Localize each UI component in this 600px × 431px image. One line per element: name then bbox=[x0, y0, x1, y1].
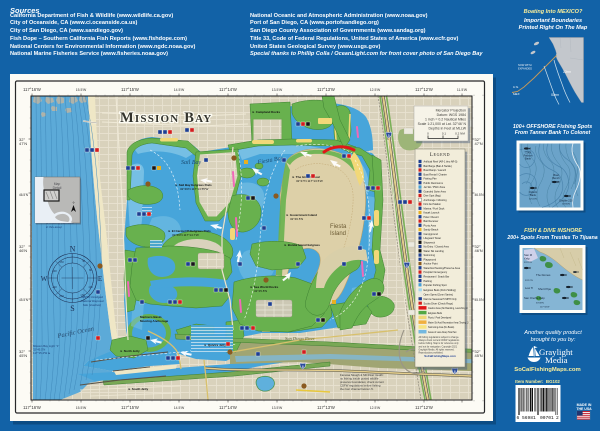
svg-text:5: 5 bbox=[406, 264, 408, 268]
svg-text:45.5'N: 45.5'N bbox=[19, 298, 29, 302]
svg-text:12nm: 12nm bbox=[563, 70, 571, 74]
svg-text:► Campland Docks: ► Campland Docks bbox=[252, 110, 280, 114]
svg-text:117°16'W: 117°16'W bbox=[23, 87, 41, 92]
svg-text:► Quivira Jetty: ► Quivira Jetty bbox=[204, 343, 226, 347]
svg-text:Hotel / Resort: Hotel / Resort bbox=[424, 215, 439, 219]
svg-text:1 inch = 0.2 Nautical Miles: 1 inch = 0.2 Nautical Miles bbox=[425, 118, 466, 122]
svg-text:Picnic Area: Picnic Area bbox=[424, 223, 437, 227]
svg-text:15.5'W: 15.5'W bbox=[76, 88, 87, 92]
svg-text:Kayak Launch: Kayak Launch bbox=[424, 211, 440, 215]
svg-text:Detail: Detail bbox=[53, 186, 62, 190]
svg-text:46'N: 46'N bbox=[19, 248, 27, 253]
svg-text:12.5'W: 12.5'W bbox=[370, 406, 381, 410]
svg-text:117°32'W: 117°32'W bbox=[540, 307, 550, 309]
svg-text:32°05'N: 32°05'N bbox=[562, 204, 570, 206]
svg-text:33°00'N: 33°00'N bbox=[552, 182, 560, 184]
svg-text:117°14'W: 117°14'W bbox=[219, 87, 237, 92]
svg-text:Datum: WGS 1984: Datum: WGS 1984 bbox=[437, 113, 466, 117]
svg-text:Eelgrass Beds (Fish-Holding): Eelgrass Beds (Fish-Holding) bbox=[424, 288, 456, 292]
svg-text:Parking: Parking bbox=[424, 279, 433, 283]
svg-text:the river channel below I-5.: the river channel below I-5. bbox=[340, 387, 374, 391]
svg-text:Bench: Bench bbox=[552, 176, 560, 180]
svg-text:0.2 NM: 0.2 NM bbox=[455, 132, 465, 136]
svg-text:Anchorage / Mooring: Anchorage / Mooring bbox=[424, 198, 448, 202]
svg-text:210: 210 bbox=[59, 294, 64, 298]
svg-text:Shipwreck: Shipwreck bbox=[424, 240, 436, 244]
svg-text:Site (inactive): Site (inactive) bbox=[83, 303, 101, 307]
svg-text:32°46'N 117°14.7'W: 32°46'N 117°14.7'W bbox=[172, 233, 199, 237]
svg-text:Boat Ramp / Launch: Boat Ramp / Launch bbox=[424, 168, 447, 172]
svg-text:The Domes: The Domes bbox=[536, 273, 551, 277]
svg-text:Dive Spot (flag): Dive Spot (flag) bbox=[424, 194, 441, 198]
svg-text:13.5'W: 13.5'W bbox=[272, 88, 283, 92]
svg-text:120: 120 bbox=[88, 285, 93, 289]
svg-text:Hospital / Emergency: Hospital / Emergency bbox=[424, 270, 448, 274]
svg-text:12.5'W: 12.5'W bbox=[370, 88, 381, 92]
svg-text:SoCalFishingMaps.com: SoCalFishingMaps.com bbox=[424, 354, 456, 358]
svg-text:Waterfowl Nesting/Preserve Are: Waterfowl Nesting/Preserve Area bbox=[424, 266, 461, 270]
svg-text:Bank: Bank bbox=[525, 157, 532, 161]
svg-text:56981: 56981 bbox=[522, 415, 536, 421]
svg-text:60: 60 bbox=[89, 268, 93, 272]
svg-text:32°46.5'N: 32°46.5'N bbox=[290, 217, 303, 221]
svg-text:8: 8 bbox=[302, 365, 304, 369]
svg-text:14.5'W: 14.5'W bbox=[174, 88, 185, 92]
svg-text:117°15'W: 117°15'W bbox=[121, 87, 139, 92]
svg-text:117°13'W: 117°13'W bbox=[317, 87, 335, 92]
svg-text:MISSION BAY: MISSION BAY bbox=[120, 110, 212, 126]
svg-text:Scuba Diver (Check Regs): Scuba Diver (Check Regs) bbox=[424, 301, 454, 305]
svg-text:33°08'N: 33°08'N bbox=[536, 303, 544, 305]
svg-text:Open Speed Zone (Varies): Open Speed Zone (Varies) bbox=[424, 292, 454, 296]
svg-text:W: W bbox=[41, 275, 48, 283]
svg-text:Bait Barge (Bait & Tackle): Bait Barge (Bait & Tackle) bbox=[424, 164, 452, 168]
svg-text:Areas of Less-Deep Total Set: Areas of Less-Deep Total Set bbox=[428, 331, 457, 334]
svg-text:Boat Rental / Charter: Boat Rental / Charter bbox=[424, 172, 447, 176]
svg-text:47'N: 47'N bbox=[19, 141, 27, 146]
svg-text:0.1: 0.1 bbox=[442, 132, 447, 136]
svg-text:NOW WITH: NOW WITH bbox=[518, 63, 532, 67]
svg-text:32°46'N 117°14.55'W: 32°46'N 117°14.55'W bbox=[180, 187, 209, 191]
svg-text:Bank: Bank bbox=[530, 193, 537, 197]
svg-text:Double 220: Double 220 bbox=[559, 199, 573, 203]
svg-text:45'N: 45'N bbox=[19, 353, 27, 358]
svg-text:EXPANDED: EXPANDED bbox=[518, 67, 532, 71]
svg-text:2: 2 bbox=[556, 415, 559, 421]
svg-text:5: 5 bbox=[388, 134, 390, 138]
svg-text:Water Ski And Recreation Area: Water Ski And Recreation Area (Towing 1/ bbox=[428, 321, 469, 324]
svg-text:Restaurant / Snack Bar: Restaurant / Snack Bar bbox=[424, 274, 450, 278]
svg-text:240: 240 bbox=[52, 285, 57, 289]
svg-text:Mercator Projection: Mercator Projection bbox=[436, 109, 466, 113]
svg-text:► North Jetty: ► North Jetty bbox=[120, 349, 140, 353]
svg-text:Water Ski Landing: Water Ski Landing bbox=[424, 249, 445, 253]
svg-text:No Entry / Closed Area: No Entry / Closed Area bbox=[424, 245, 450, 249]
svg-text:MEX.: MEX. bbox=[513, 92, 521, 96]
svg-text:330: 330 bbox=[59, 260, 64, 264]
svg-text:Sail Bay: Sail Bay bbox=[181, 160, 201, 166]
svg-text:8: 8 bbox=[454, 370, 456, 374]
svg-text:Guarded Swim Area: Guarded Swim Area bbox=[424, 189, 447, 193]
svg-text:32°22'N: 32°22'N bbox=[529, 199, 537, 201]
svg-text:Sandy Beach: Sandy Beach bbox=[424, 228, 439, 232]
svg-text:Artificial Reef (AR-1 thru AR-: Artificial Reef (AR-1 thru AR-5) bbox=[424, 160, 458, 164]
svg-text:Playground: Playground bbox=[424, 257, 437, 261]
svg-text:11.5'W: 11.5'W bbox=[457, 88, 468, 92]
svg-text:► Bonita Island Eelgrass: ► Bonita Island Eelgrass bbox=[284, 243, 320, 247]
svg-text:Scale 1:21,000 at Lat. 32°46': Scale 1:21,000 at Lat. 32°46' N bbox=[418, 122, 467, 126]
svg-text:Anchor Point: Anchor Point bbox=[424, 262, 439, 266]
svg-text:Fiesta: Fiesta bbox=[330, 224, 347, 230]
svg-text:Swimming Area (No Boats): Swimming Area (No Boats) bbox=[428, 326, 454, 329]
svg-text:Mooring Anchorage: Mooring Anchorage bbox=[140, 319, 169, 323]
svg-text:U.S.: U.S. bbox=[513, 85, 519, 89]
svg-text:Island: Island bbox=[330, 231, 346, 237]
svg-text:Kelp: Kelp bbox=[524, 257, 530, 261]
svg-text:San Onofre Kelp: San Onofre Kelp bbox=[524, 296, 545, 300]
svg-text:46.5'N: 46.5'N bbox=[475, 193, 485, 197]
svg-text:117°12'W: 117°12'W bbox=[415, 405, 433, 410]
svg-text:117°16'W: 117°16'W bbox=[23, 405, 41, 410]
svg-text:Campground: Campground bbox=[424, 232, 439, 236]
svg-text:Lifeguard Tower: Lifeguard Tower bbox=[424, 236, 442, 240]
svg-text:Picnic / Park Developed: Picnic / Park Developed bbox=[428, 317, 452, 320]
svg-text:117°12'W: 117°12'W bbox=[415, 87, 433, 92]
svg-text:S: S bbox=[70, 304, 74, 313]
svg-text:Popular Fishing Spot: Popular Fishing Spot bbox=[424, 283, 447, 287]
svg-text:Eelgrass Beds: Eelgrass Beds bbox=[428, 312, 443, 315]
svg-text:46.5'N: 46.5'N bbox=[19, 193, 29, 197]
svg-text:33°22'N: 33°22'N bbox=[524, 262, 532, 264]
svg-text:50nm: 50nm bbox=[551, 93, 559, 97]
svg-text:Fishing Pier: Fishing Pier bbox=[424, 177, 437, 181]
svg-text:Short Pipe: Short Pipe bbox=[538, 287, 552, 291]
svg-text:Depths in Feet at MLLW: Depths in Feet at MLLW bbox=[429, 127, 467, 131]
svg-text:Low Ti: Low Ti bbox=[525, 286, 533, 290]
svg-text:Marina / Fuel Dock: Marina / Fuel Dock bbox=[424, 206, 446, 210]
svg-text:in this area): in this area) bbox=[46, 225, 62, 229]
svg-text:30: 30 bbox=[82, 259, 86, 263]
svg-text:00701: 00701 bbox=[540, 415, 554, 421]
svg-text:15.5'W: 15.5'W bbox=[76, 406, 87, 410]
svg-text:117°13'W: 117°13'W bbox=[317, 405, 335, 410]
svg-text:32°45.8'N: 32°45.8'N bbox=[254, 289, 267, 293]
svg-text:13.5'W: 13.5'W bbox=[272, 406, 283, 410]
svg-text:San Diego River: San Diego River bbox=[285, 336, 315, 341]
svg-text:33°12'N: 33°12'N bbox=[525, 280, 533, 282]
svg-text:Caution Area (No Boarding, Lau: Caution Area (No Boarding, Launching or bbox=[428, 307, 468, 310]
svg-text:45'N: 45'N bbox=[475, 353, 483, 358]
svg-text:46'N: 46'N bbox=[475, 248, 483, 253]
svg-text:47'N: 47'N bbox=[475, 141, 483, 146]
svg-text:Jet Ski / PWC Zone: Jet Ski / PWC Zone bbox=[424, 185, 446, 189]
svg-text:14.5'W: 14.5'W bbox=[174, 406, 185, 410]
svg-text:► South Jetty: ► South Jetty bbox=[128, 387, 148, 391]
svg-text:300: 300 bbox=[52, 269, 57, 273]
svg-text:Bait Receiver: Bait Receiver bbox=[424, 219, 439, 223]
svg-text:45.5'N: 45.5'N bbox=[475, 298, 485, 302]
svg-text:117°14'W: 117°14'W bbox=[219, 405, 237, 410]
svg-text:Swimming: Swimming bbox=[424, 253, 436, 257]
svg-text:117°15.4'W ►: 117°15.4'W ► bbox=[33, 351, 51, 355]
svg-text:N: N bbox=[70, 245, 76, 254]
svg-text:6: 6 bbox=[517, 415, 520, 421]
svg-text:E: E bbox=[98, 275, 102, 283]
svg-text:First Aid Station: First Aid Station bbox=[424, 202, 442, 206]
svg-text:Narrow Seasonal 5 MPH Only: Narrow Seasonal 5 MPH Only bbox=[424, 297, 458, 301]
svg-text:117°15'W: 117°15'W bbox=[121, 405, 139, 410]
svg-text:32°47'N 117°13.5'W: 32°47'N 117°13.5'W bbox=[296, 179, 323, 183]
svg-text:Public Restrooms: Public Restrooms bbox=[424, 181, 444, 185]
